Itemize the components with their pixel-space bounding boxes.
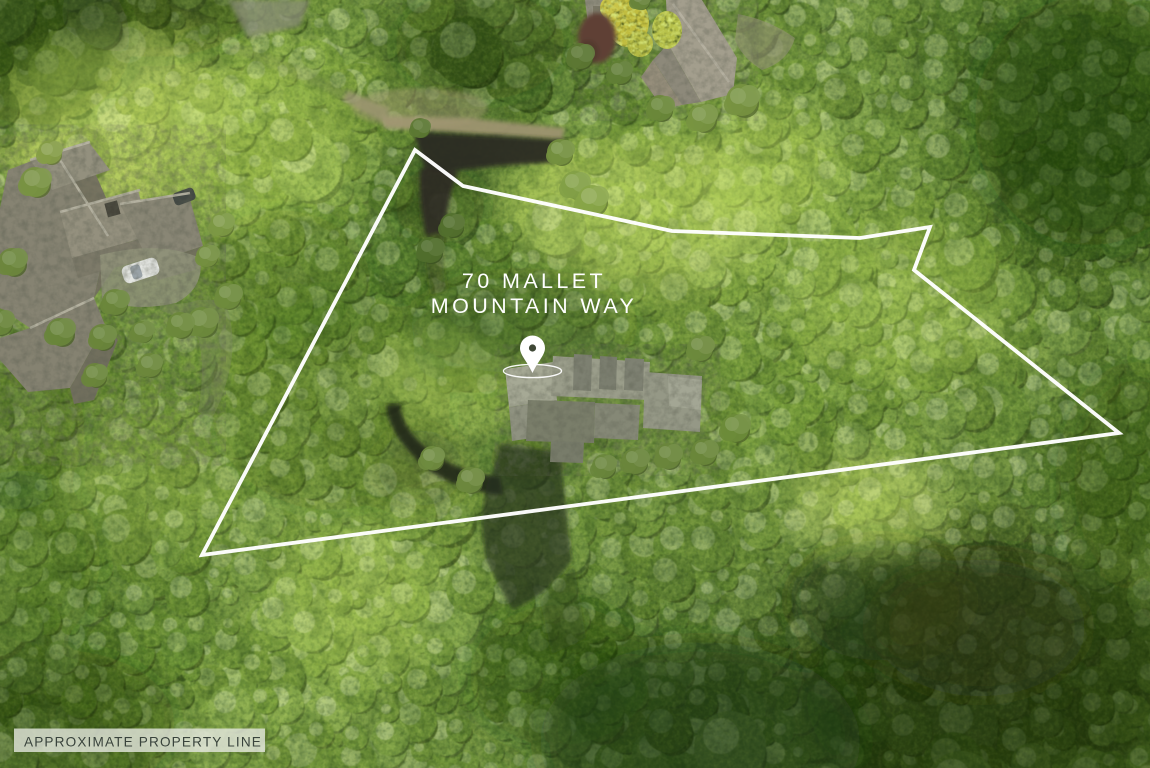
svg-text:MOUNTAIN WAY: MOUNTAIN WAY xyxy=(431,294,637,318)
svg-text:APPROXIMATE PROPERTY LINE: APPROXIMATE PROPERTY LINE xyxy=(24,735,262,750)
svg-text:70 MALLET: 70 MALLET xyxy=(462,269,606,293)
